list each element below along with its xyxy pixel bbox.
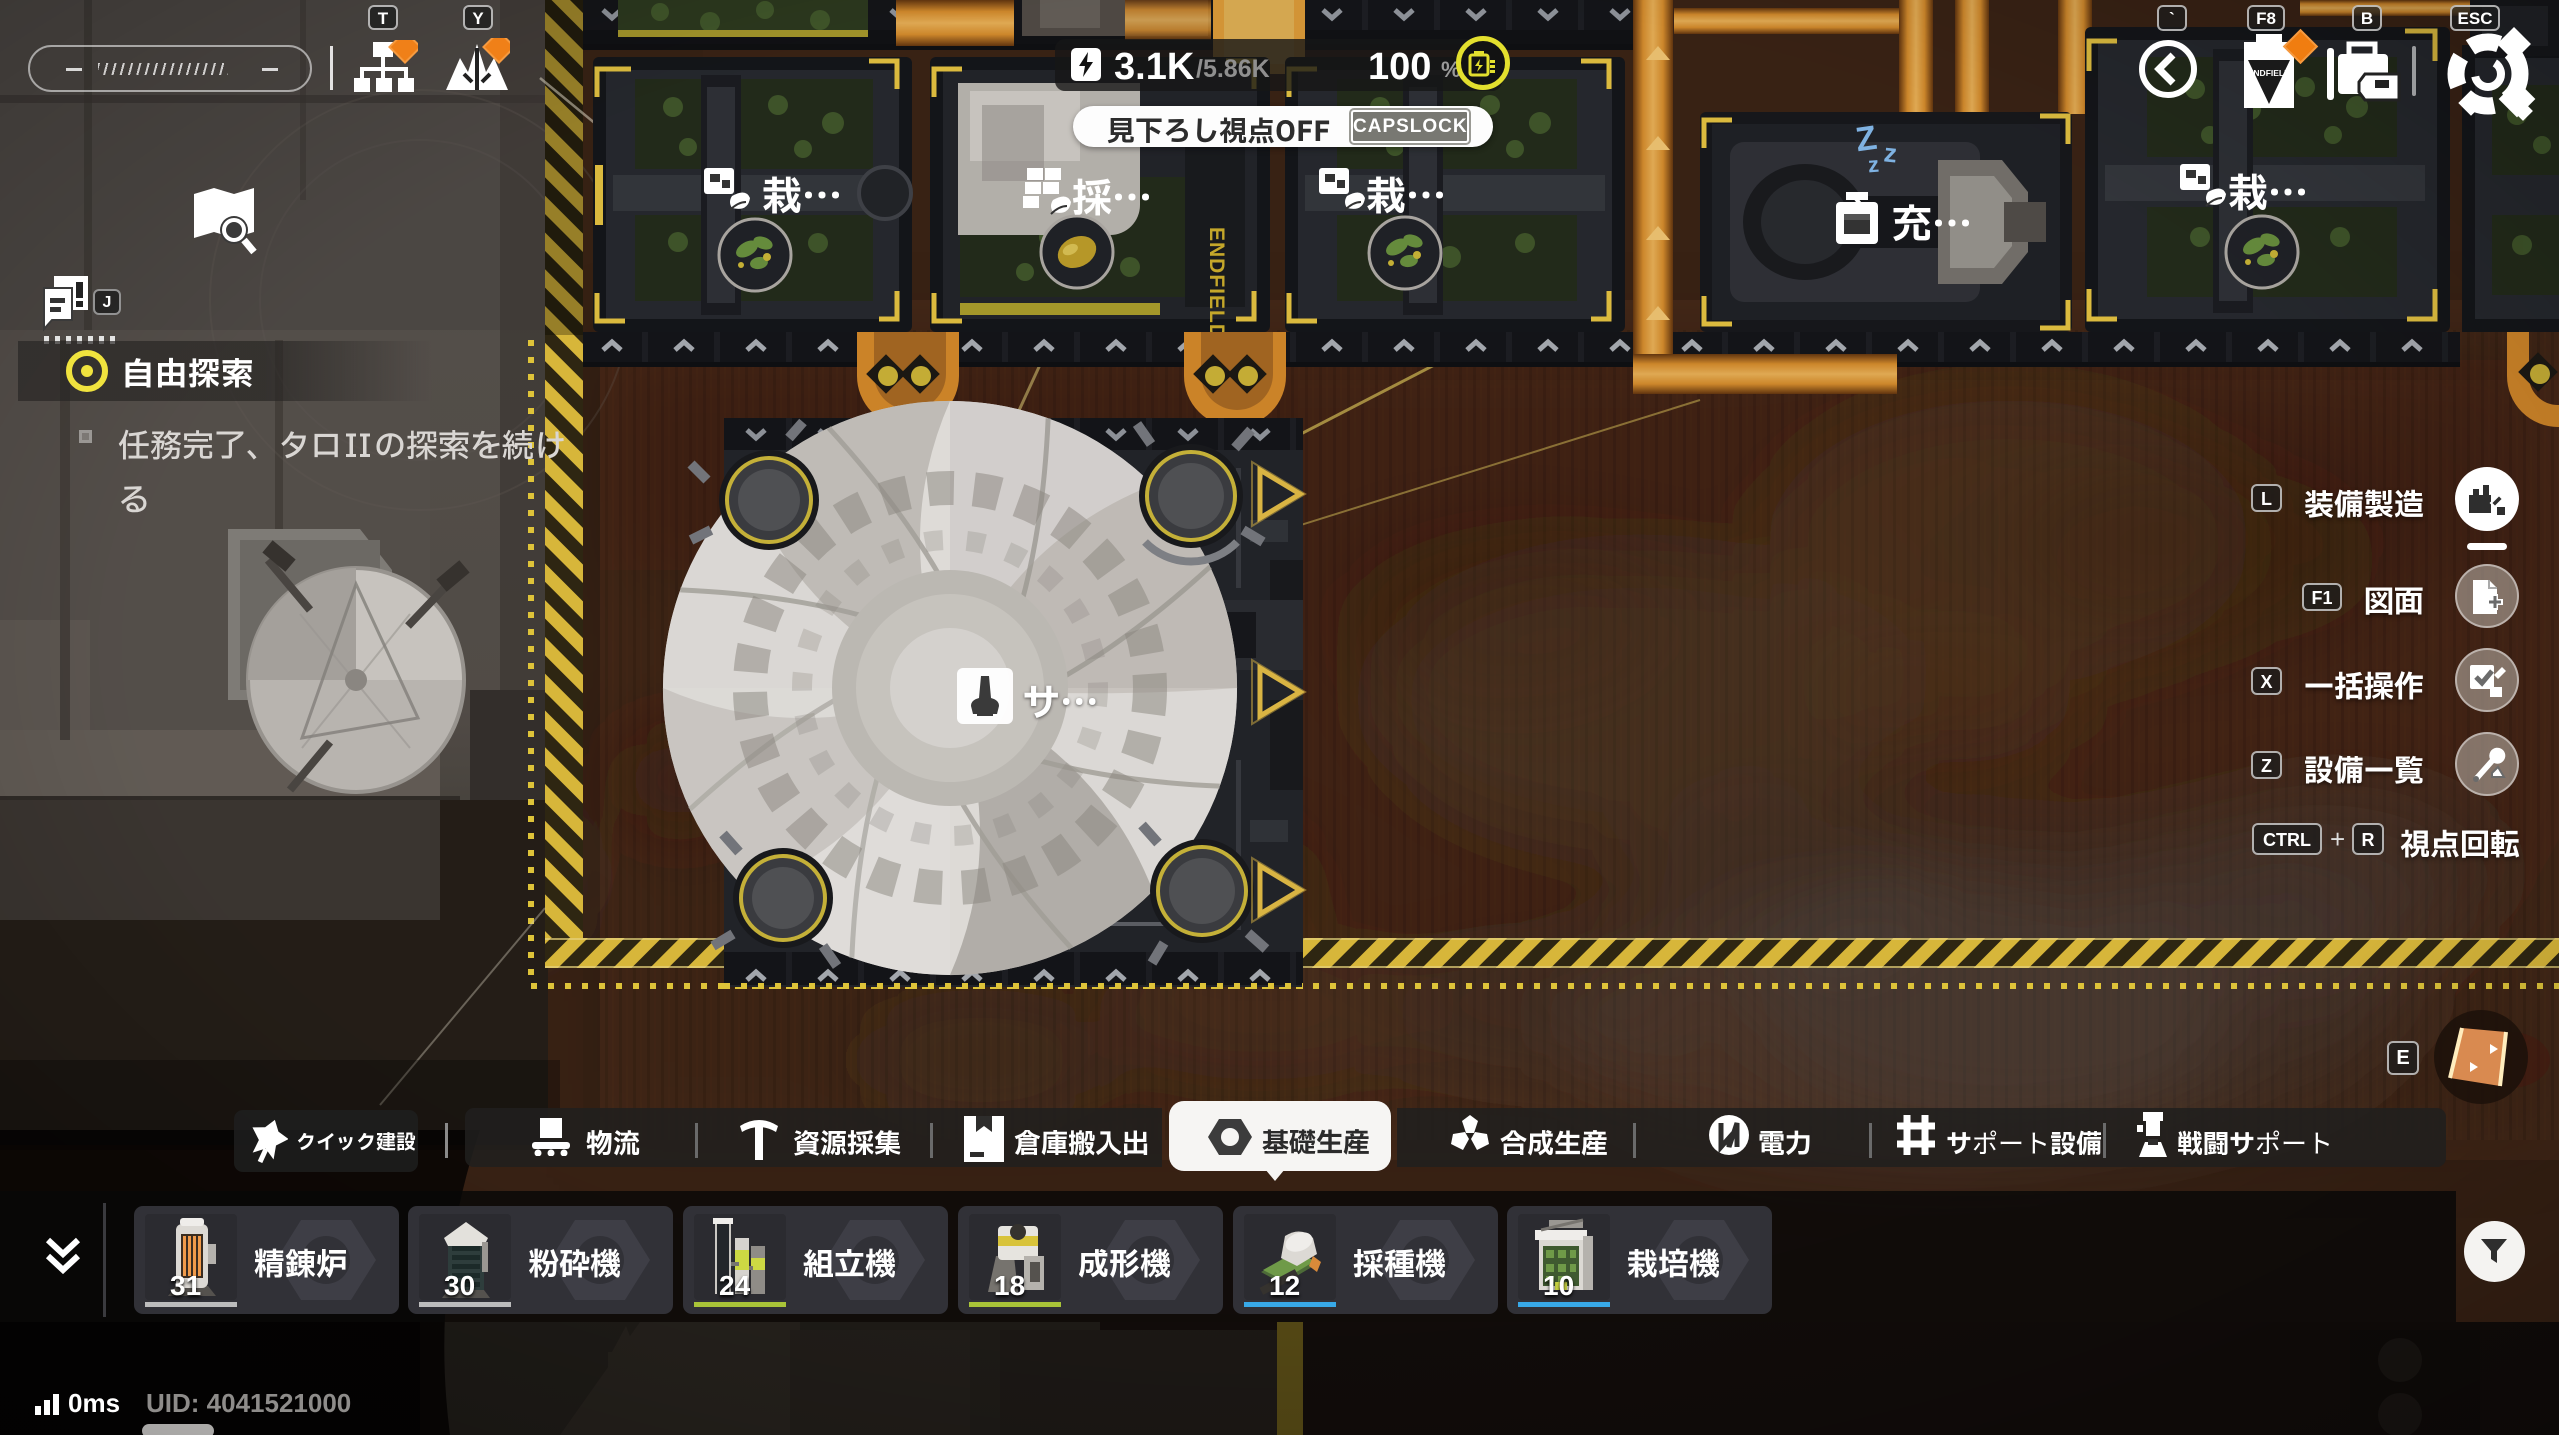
svg-text:ENDFIELD: ENDFIELD — [2248, 68, 2291, 78]
